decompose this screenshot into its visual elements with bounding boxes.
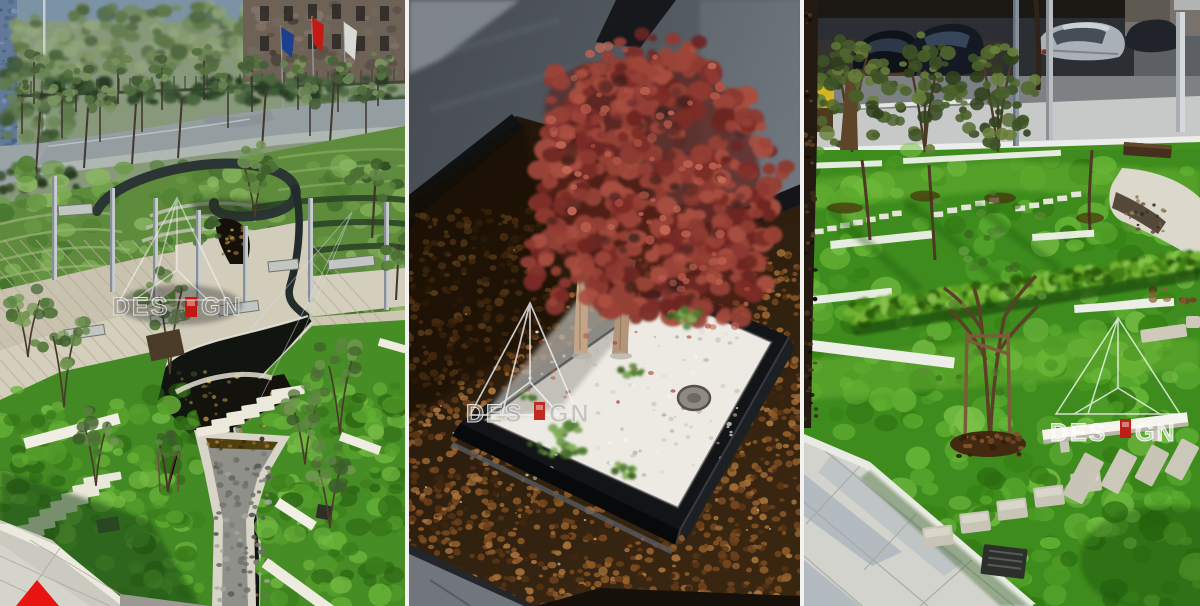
svg-text:GN: GN (201, 293, 243, 321)
svg-text:DES: DES (466, 400, 523, 428)
svg-text:DES: DES (112, 293, 169, 321)
svg-text:GN: GN (549, 400, 591, 428)
